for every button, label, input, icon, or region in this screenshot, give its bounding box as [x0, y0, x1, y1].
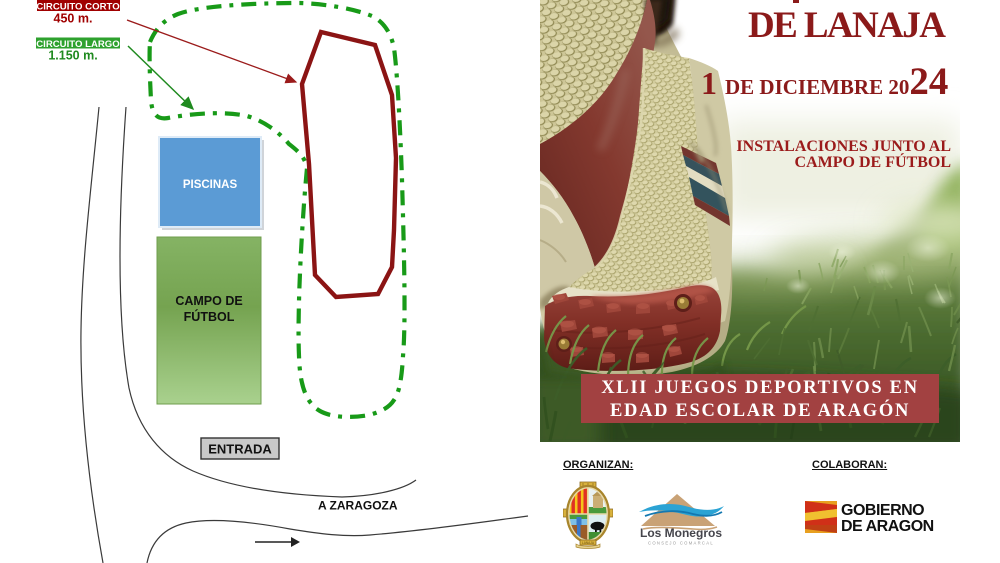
svg-text:FÚTBOL: FÚTBOL [184, 309, 235, 324]
svg-text:DE ARAGON: DE ARAGON [841, 518, 934, 534]
svg-text:CAMPO DE: CAMPO DE [175, 294, 242, 308]
svg-text:Los Monegros: Los Monegros [640, 526, 722, 540]
svg-text:A ZARAGOZA: A ZARAGOZA [318, 499, 398, 513]
svg-text:1.150 m.: 1.150 m. [48, 49, 97, 63]
svg-text:LANAJA: LANAJA [582, 541, 595, 545]
svg-text:CONSEJO COMARCAL: CONSEJO COMARCAL [648, 541, 714, 546]
svg-text:450 m.: 450 m. [54, 12, 93, 26]
svg-text:ENTRADA: ENTRADA [208, 442, 272, 457]
svg-text:PISCINAS: PISCINAS [183, 179, 238, 191]
svg-text:GOBIERNO: GOBIERNO [841, 502, 924, 519]
